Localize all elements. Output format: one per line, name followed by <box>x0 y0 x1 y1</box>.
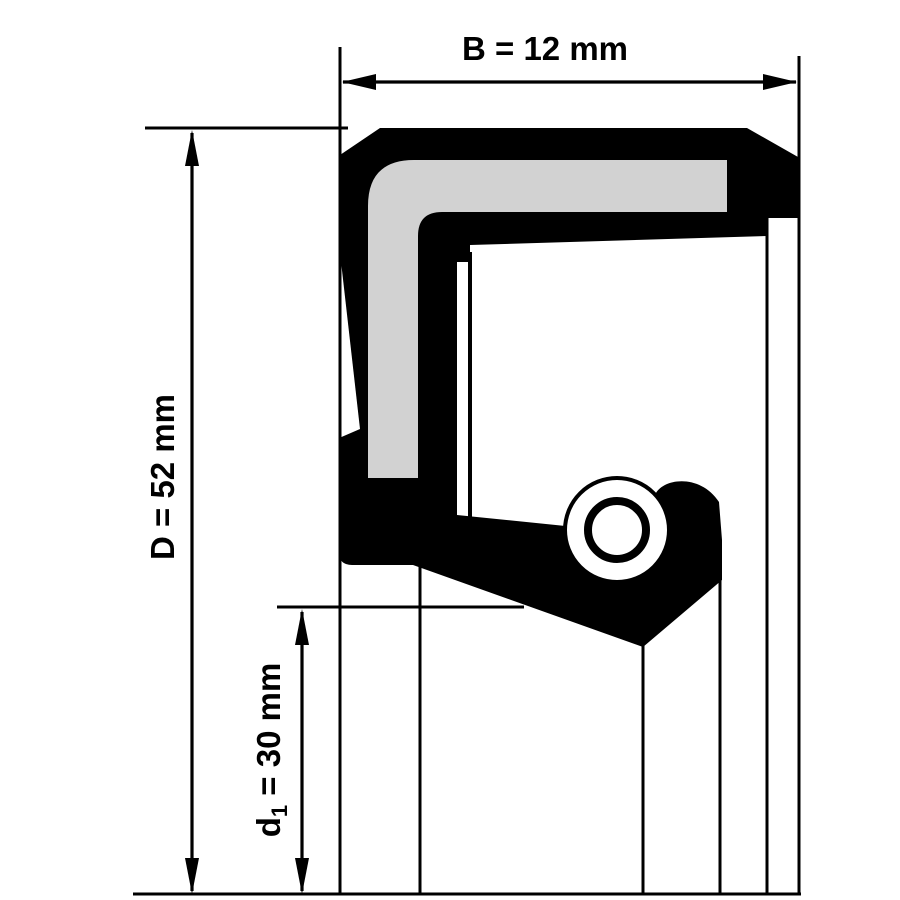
garter-spring-ring <box>588 501 646 559</box>
dimension-d1-arrow-up <box>295 609 309 645</box>
dimension-d-arrow-down <box>185 858 199 894</box>
seal-technical-drawing: B = 12 mm D = 52 mm d1 = 30 mm <box>0 0 900 900</box>
dimension-b-label: B = 12 mm <box>462 30 628 67</box>
dimension-d1-label-base: d <box>250 817 287 837</box>
dimension-d1-label-sub: 1 <box>267 805 292 817</box>
dimension-b-arrow-left <box>342 74 376 90</box>
dimension-d1-label-rest: = 30 mm <box>250 663 287 805</box>
dimension-b-arrow-right <box>763 74 797 90</box>
drawing-canvas: B = 12 mm D = 52 mm d1 = 30 mm <box>0 0 900 900</box>
dimension-d1-arrow-down <box>295 858 309 894</box>
dimension-d-arrow-up <box>185 130 199 166</box>
dimension-d: D = 52 mm <box>144 130 199 894</box>
dimension-d1-label: d1 = 30 mm <box>250 663 292 838</box>
dimension-d-label: D = 52 mm <box>144 394 181 560</box>
dimension-d1: d1 = 30 mm <box>250 609 309 894</box>
dimension-b: B = 12 mm <box>342 30 797 90</box>
